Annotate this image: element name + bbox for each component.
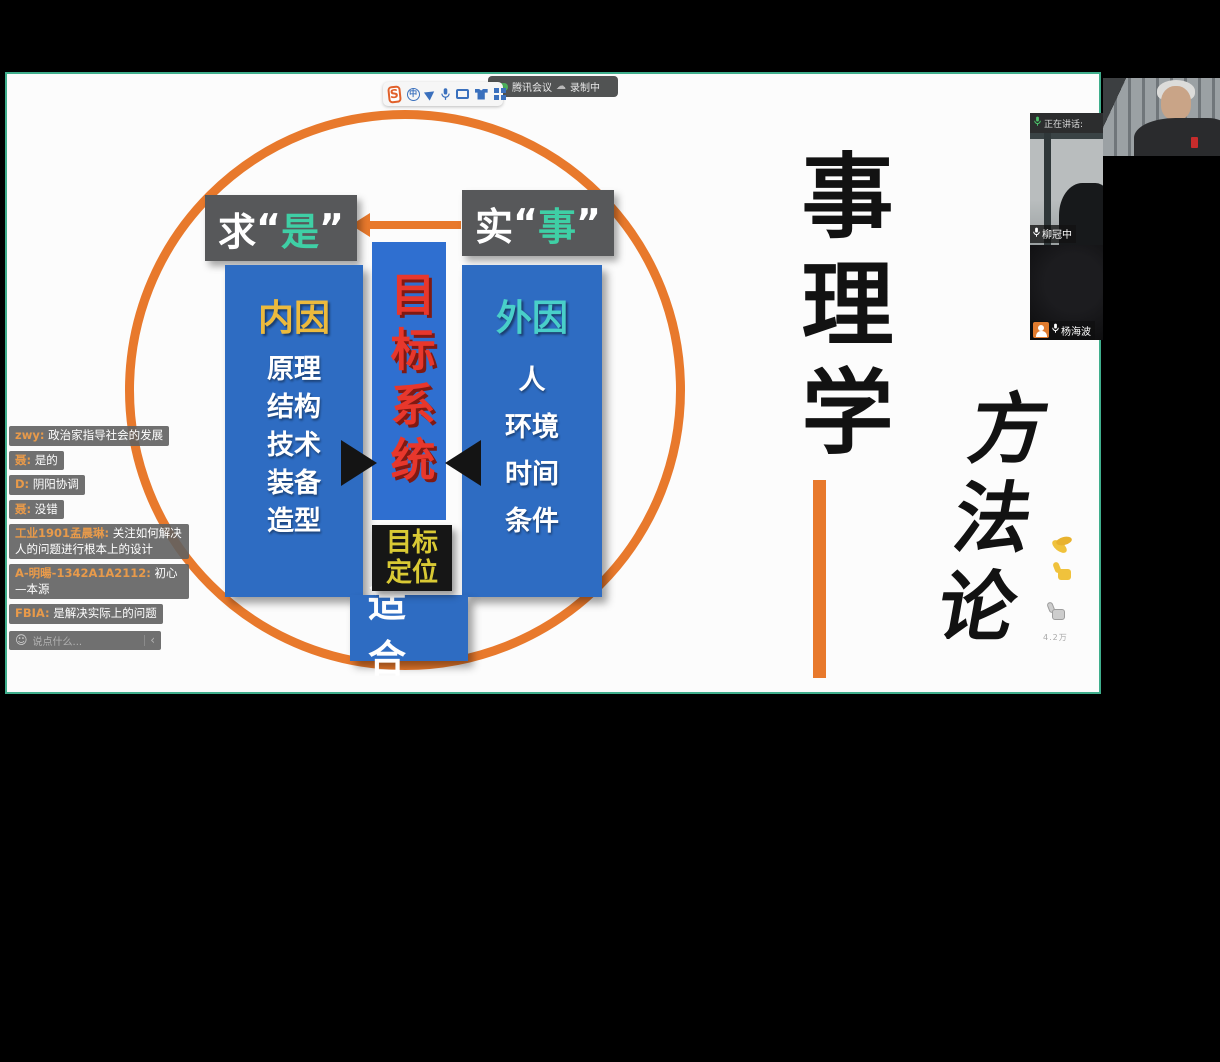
mic-icon bbox=[1052, 323, 1059, 337]
language-icon[interactable]: 中 bbox=[407, 88, 420, 101]
seek-truth-char: 是 bbox=[281, 201, 319, 256]
chat-message: 聂: 是的 bbox=[9, 451, 64, 471]
quote-close: ” bbox=[576, 201, 601, 245]
share-app-logo-icon[interactable]: S bbox=[387, 85, 401, 103]
chat-username: D: bbox=[15, 477, 29, 491]
participant-name-tag: 柳冠中 bbox=[1030, 225, 1076, 243]
chat-username: 聂: bbox=[15, 502, 31, 516]
speaker-video-tile[interactable] bbox=[1103, 78, 1220, 156]
chat-input[interactable]: ☺ 说点什么... ‹ bbox=[9, 631, 161, 650]
participant-name: 柳冠中 bbox=[1042, 226, 1072, 241]
from-facts-prefix: 实 bbox=[475, 196, 513, 251]
participant-video-tile[interactable]: 柳冠中 bbox=[1030, 133, 1103, 245]
seek-truth-box: 求“是” bbox=[205, 195, 357, 261]
goal-system-title: 目标系统 bbox=[377, 271, 442, 491]
divider bbox=[144, 635, 145, 646]
now-speaking-bar: 正在讲话: bbox=[1030, 113, 1103, 133]
members-icon[interactable] bbox=[475, 89, 488, 100]
chat-overlay: zwy: 政治家指导社会的发展 聂: 是的 D: 阴阳协调 聂: 没错 工业19… bbox=[9, 426, 201, 650]
share-toolbar: S 中 bbox=[383, 82, 503, 106]
participants-panel: 正在讲话: 柳冠中 杨海波 bbox=[1030, 113, 1103, 340]
inner-factors-title: 内因 bbox=[225, 289, 363, 341]
emoji-icon[interactable]: ☺ bbox=[15, 634, 28, 646]
meeting-app-name: 腾讯会议 bbox=[512, 79, 552, 94]
chat-username: FBIA: bbox=[15, 606, 50, 620]
arrowhead-right-icon bbox=[341, 440, 377, 486]
active-mic-icon bbox=[1034, 116, 1041, 130]
inner-factors-box: 内因 原理 结构 技术 装备 造型 bbox=[225, 265, 363, 597]
chat-message: FBIA: 是解决实际上的问题 bbox=[9, 604, 163, 624]
outer-factors-list: 人 环境 时间 条件 bbox=[462, 357, 602, 545]
quote-open: “ bbox=[513, 201, 538, 245]
outer-item: 环境 bbox=[462, 404, 602, 451]
chat-username: zwy: bbox=[15, 428, 44, 442]
inner-item: 结构 bbox=[225, 389, 363, 427]
arrowhead-left-icon bbox=[445, 440, 481, 486]
goal-position-text: 目标定位 bbox=[384, 528, 440, 588]
inner-item: 原理 bbox=[225, 351, 363, 389]
chat-username: 聂: bbox=[15, 453, 31, 467]
fit-box: 适 合 bbox=[350, 595, 468, 661]
collapse-chevron-icon[interactable]: ‹ bbox=[150, 634, 155, 646]
mic-icon bbox=[1033, 227, 1040, 241]
seek-truth-prefix: 求 bbox=[218, 201, 256, 256]
whiteboard-icon[interactable] bbox=[456, 89, 469, 99]
slide-title-vertical: 事理学 bbox=[773, 148, 906, 472]
chat-text: 没错 bbox=[35, 502, 58, 516]
quote-open: “ bbox=[256, 206, 281, 250]
cloud-icon: ☁ bbox=[556, 81, 566, 92]
microphone-icon[interactable] bbox=[441, 88, 450, 101]
slide-subtitle-vertical: 方法论 bbox=[906, 388, 1064, 655]
chat-message: 聂: 没错 bbox=[9, 500, 64, 520]
outer-factors-title: 外因 bbox=[462, 289, 602, 341]
goal-system-column: 目标系统 bbox=[372, 242, 446, 520]
shared-screen-area: S 中 腾讯会议 ☁ 录制中 zwy: 政治家指导社会的发展 聂: 是的 D: … bbox=[5, 72, 1101, 694]
participant-name: 杨海波 bbox=[1061, 323, 1091, 338]
like-button-icon[interactable] bbox=[1047, 601, 1069, 621]
speaker-body bbox=[1134, 118, 1220, 156]
outer-item: 人 bbox=[462, 357, 602, 404]
speaker-face bbox=[1161, 86, 1191, 120]
recording-status-pill[interactable]: 腾讯会议 ☁ 录制中 bbox=[488, 76, 618, 97]
recording-status-text: 录制中 bbox=[570, 79, 600, 94]
speaker-badge bbox=[1191, 137, 1198, 148]
outer-item: 条件 bbox=[462, 498, 602, 545]
chat-message: 工业1901孟晨琳: 关注如何解决人的问题进行根本上的设计 bbox=[9, 524, 189, 559]
chat-message: D: 阴阳协调 bbox=[9, 475, 85, 495]
chat-text: 政治家指导社会的发展 bbox=[48, 428, 163, 442]
participant-name-tag: 杨海波 bbox=[1030, 321, 1095, 340]
window-frame bbox=[1030, 133, 1103, 139]
chat-input-placeholder: 说点什么... bbox=[33, 633, 140, 648]
title-underline-bar bbox=[813, 480, 826, 678]
chat-message: A-明暘-1342A1A2112: 初心—本源 bbox=[9, 564, 189, 599]
chat-text: 是的 bbox=[35, 453, 58, 467]
arrow-shaft bbox=[369, 221, 461, 229]
goal-position-box: 目标定位 bbox=[372, 525, 452, 591]
inner-item: 造型 bbox=[225, 503, 363, 541]
chat-text: 是解决实际上的问题 bbox=[53, 606, 157, 620]
avatar-person-icon bbox=[1033, 322, 1049, 338]
chat-username: 工业1901孟晨琳: bbox=[15, 526, 109, 540]
outer-factors-box: 外因 人 环境 时间 条件 bbox=[462, 265, 602, 597]
from-facts-char: 事 bbox=[538, 196, 576, 251]
now-speaking-text: 正在讲话: bbox=[1044, 117, 1083, 130]
laser-pointer-icon[interactable] bbox=[426, 89, 435, 99]
quote-close: ” bbox=[319, 206, 344, 250]
chat-username: A-明暘-1342A1A2112: bbox=[15, 566, 151, 580]
apps-grid-icon[interactable] bbox=[494, 88, 506, 100]
like-count-label: 4.2万 bbox=[1043, 632, 1068, 643]
chat-text: 阴阳协调 bbox=[33, 477, 79, 491]
outer-item: 时间 bbox=[462, 451, 602, 498]
clap-reaction-icon[interactable] bbox=[1049, 532, 1075, 556]
thumbs-up-reaction-icon[interactable] bbox=[1053, 561, 1075, 581]
chat-message: zwy: 政治家指导社会的发展 bbox=[9, 426, 169, 446]
participant-video-tile[interactable]: 杨海波 bbox=[1030, 245, 1103, 340]
from-facts-box: 实“事” bbox=[462, 190, 614, 256]
